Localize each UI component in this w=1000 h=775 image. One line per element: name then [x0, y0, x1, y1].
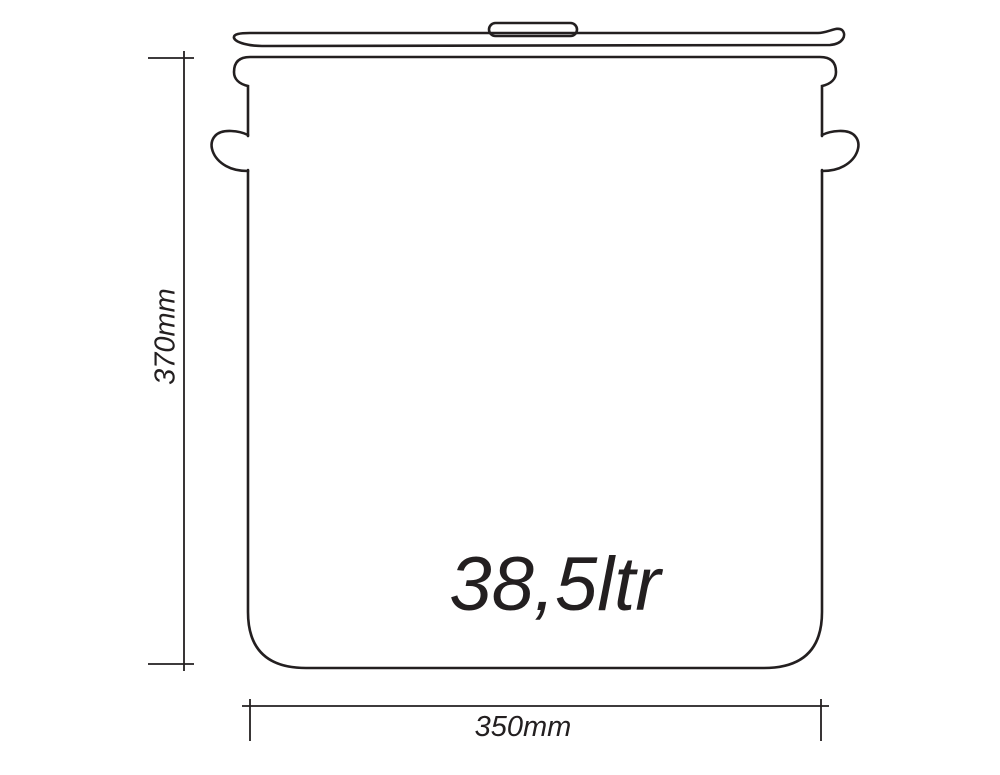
pot-handle-right: [822, 131, 858, 171]
pot-handle-left: [212, 131, 248, 171]
pot-technical-drawing: 370mm 350mm 38,5ltr: [0, 0, 1000, 775]
height-dimension-label: 370mm: [152, 267, 181, 407]
lid-outline: [234, 29, 844, 46]
dimension-lines-group: [148, 51, 829, 741]
capacity-label: 38,5ltr: [415, 547, 695, 623]
width-dimension-label: 350mm: [453, 713, 593, 742]
pot-line-drawing-svg: [0, 0, 1000, 775]
